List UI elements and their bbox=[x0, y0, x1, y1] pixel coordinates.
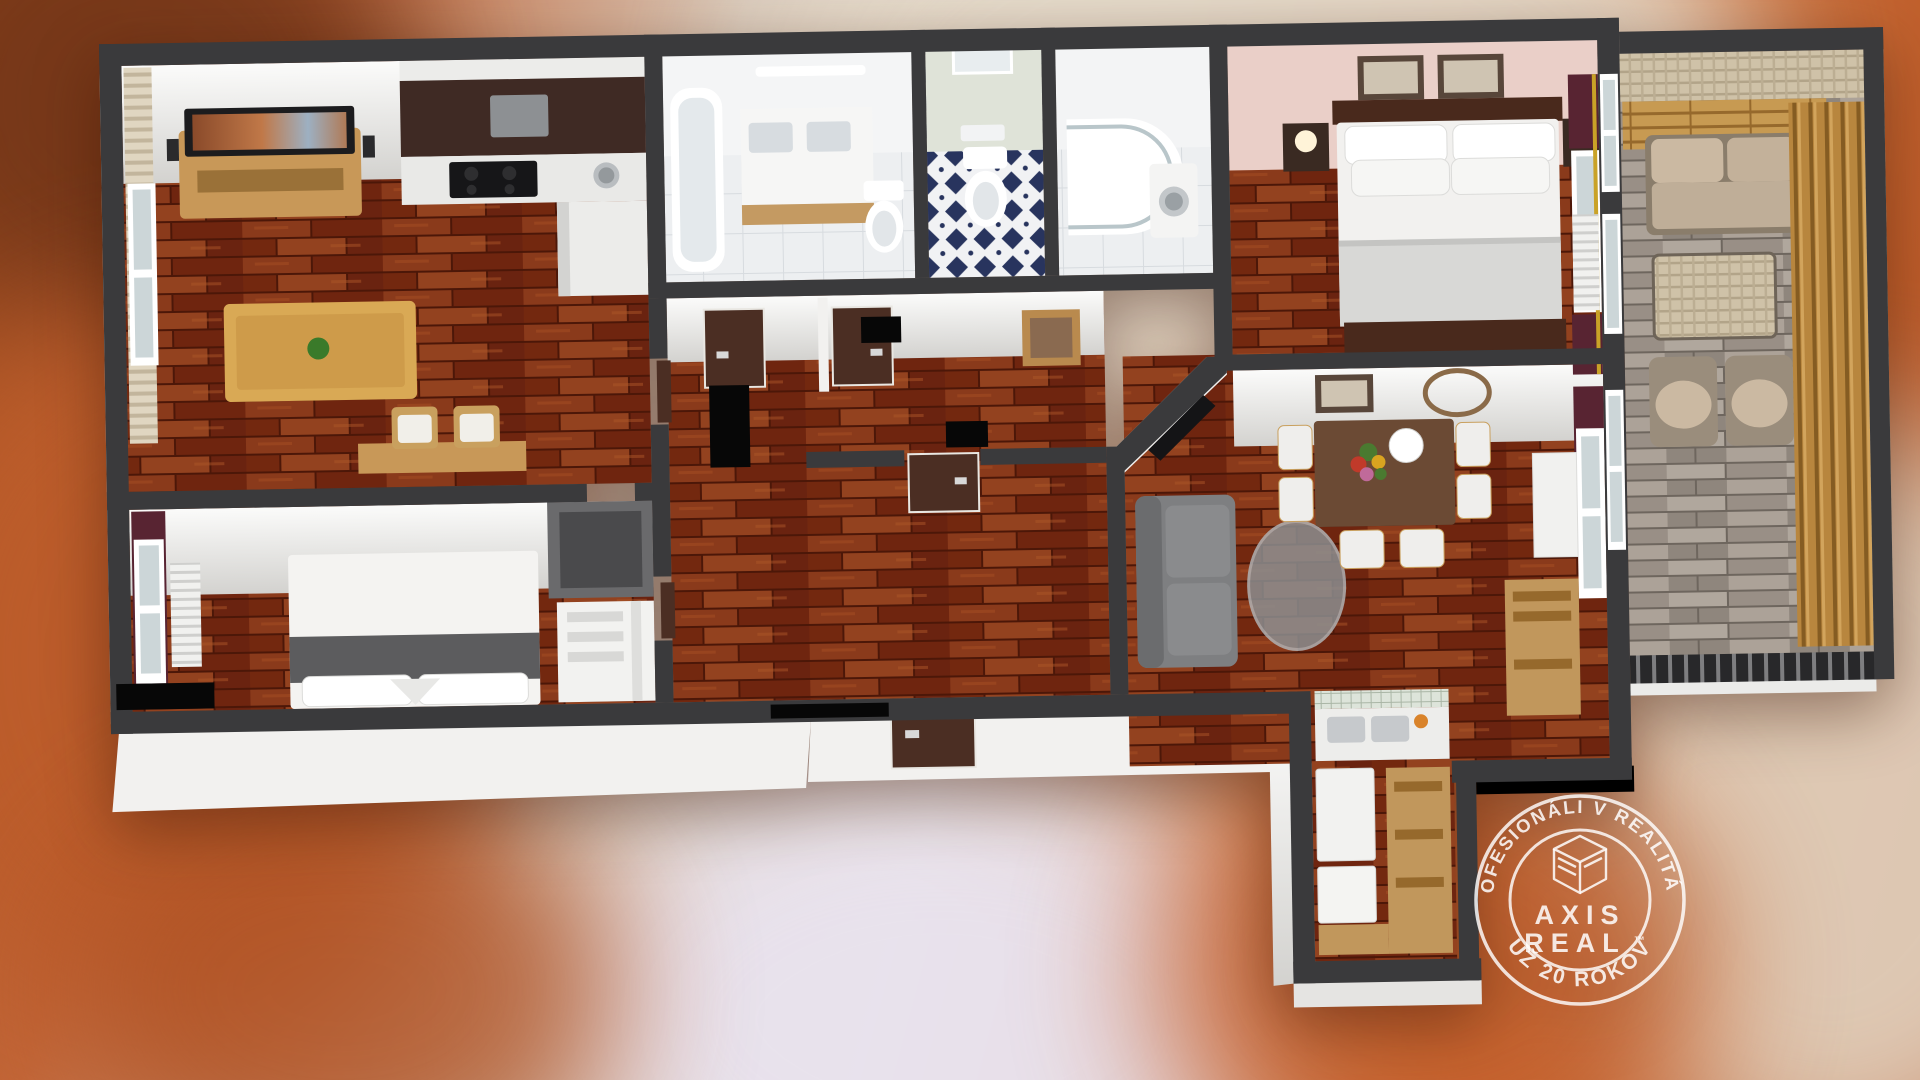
window-pane bbox=[1603, 80, 1616, 130]
window-bench bbox=[1532, 453, 1578, 558]
south-wall-face bbox=[111, 720, 812, 812]
window-pane bbox=[134, 277, 153, 357]
gray-sofa bbox=[1135, 495, 1238, 669]
wall-mirror bbox=[1022, 309, 1081, 366]
corner-niche bbox=[116, 682, 214, 710]
window-pane bbox=[1610, 472, 1623, 542]
floor-plan-render: PROFESIONÁLI V REALITÁCH UŽ 20 ROKOV AXI… bbox=[0, 0, 1920, 1080]
kitchen-peninsula bbox=[557, 201, 649, 297]
watermark-trademark: ™ bbox=[1634, 935, 1645, 947]
side-table bbox=[358, 441, 526, 474]
tv-stand-shelf bbox=[197, 168, 343, 193]
picture-art bbox=[1321, 380, 1367, 407]
dining-chair bbox=[453, 405, 500, 448]
shelf-unit bbox=[557, 601, 656, 703]
apartment-body bbox=[99, 13, 1900, 1028]
flush-plate bbox=[961, 124, 1005, 141]
outdoor-table bbox=[1653, 253, 1776, 339]
dining-chair bbox=[391, 406, 438, 449]
door-glass bbox=[1605, 220, 1619, 328]
peninsula-side bbox=[557, 202, 571, 296]
door-jamb bbox=[818, 298, 830, 392]
door-inner-hall bbox=[908, 453, 979, 512]
window-pane bbox=[1582, 516, 1601, 588]
bathtub-basin bbox=[678, 98, 717, 263]
window-pane bbox=[139, 545, 160, 605]
apartment-3d-plan: PROFESIONÁLI V REALITÁCH UŽ 20 ROKOV AXI… bbox=[0, 0, 1920, 1080]
door-handle bbox=[716, 351, 728, 358]
picture-art bbox=[1443, 60, 1498, 93]
wall-slot bbox=[771, 703, 889, 719]
wall-niche bbox=[861, 316, 901, 343]
balcony-rattan-edge-top bbox=[1619, 49, 1864, 101]
speaker-right bbox=[363, 135, 375, 157]
sideboard bbox=[1505, 579, 1581, 716]
sink-basin bbox=[1371, 716, 1409, 743]
vanity bbox=[740, 107, 874, 205]
door-leaf-bedroom2 bbox=[660, 582, 675, 638]
door-handle bbox=[955, 477, 967, 484]
sink-left bbox=[748, 122, 793, 153]
radiator bbox=[170, 563, 202, 668]
window-pane bbox=[1608, 396, 1621, 466]
door-handle bbox=[905, 730, 919, 738]
glass-coffee-table bbox=[1248, 521, 1346, 651]
double-bed bbox=[288, 551, 541, 709]
chair bbox=[1457, 474, 1492, 519]
outdoor-sofa bbox=[1645, 133, 1803, 236]
pendant-lamp bbox=[1389, 428, 1424, 463]
wc-window bbox=[953, 48, 1011, 73]
sink-basin bbox=[1327, 716, 1365, 743]
toilet bbox=[963, 146, 1008, 227]
cabinet-line bbox=[1396, 877, 1444, 888]
speaker-left bbox=[167, 139, 179, 161]
wood-cabinets bbox=[1386, 767, 1453, 954]
chair bbox=[1340, 530, 1385, 569]
chair bbox=[1456, 422, 1491, 467]
window-pane bbox=[140, 613, 161, 673]
wardrobe-niche-inner bbox=[559, 511, 642, 588]
wood-slat-screen bbox=[1788, 101, 1873, 646]
door-leaf-living bbox=[657, 360, 672, 422]
oven bbox=[490, 94, 549, 137]
cube-building-icon bbox=[1554, 836, 1606, 893]
wood-base-cabinet bbox=[1319, 924, 1390, 955]
window-pane bbox=[1604, 136, 1617, 186]
cabinet-line bbox=[1395, 829, 1443, 840]
chair bbox=[1278, 425, 1313, 470]
radiator bbox=[1572, 214, 1600, 310]
vanity-wood-base bbox=[742, 203, 874, 225]
wall-niche bbox=[946, 421, 988, 448]
outdoor-armchair bbox=[1725, 355, 1795, 446]
chair bbox=[1279, 477, 1314, 522]
cabinet-line bbox=[1394, 781, 1442, 792]
storage-niche bbox=[709, 385, 750, 468]
chair bbox=[1400, 529, 1445, 568]
mirror-shelf bbox=[755, 65, 865, 77]
watermark-brand-real: REAL bbox=[1524, 928, 1626, 958]
door-bathroom bbox=[704, 309, 765, 388]
kitchen-upper-cabinets bbox=[399, 57, 644, 81]
sink-right bbox=[806, 121, 851, 152]
backsplash bbox=[1314, 689, 1448, 709]
double-bed bbox=[1337, 119, 1563, 327]
door-handle bbox=[870, 349, 882, 356]
tv-screen bbox=[192, 112, 347, 151]
cooktop bbox=[449, 161, 538, 199]
outdoor-armchair bbox=[1649, 356, 1719, 447]
balcony-railing bbox=[1630, 651, 1876, 683]
watermark-brand-axis: AXIS bbox=[1534, 900, 1625, 930]
window-pane bbox=[133, 189, 152, 269]
picture-art bbox=[1364, 61, 1419, 94]
fridge bbox=[1316, 768, 1376, 861]
dishwasher bbox=[1318, 866, 1377, 923]
window-pane bbox=[1581, 436, 1600, 508]
toilet bbox=[864, 180, 905, 253]
washing-machine bbox=[1149, 163, 1198, 238]
